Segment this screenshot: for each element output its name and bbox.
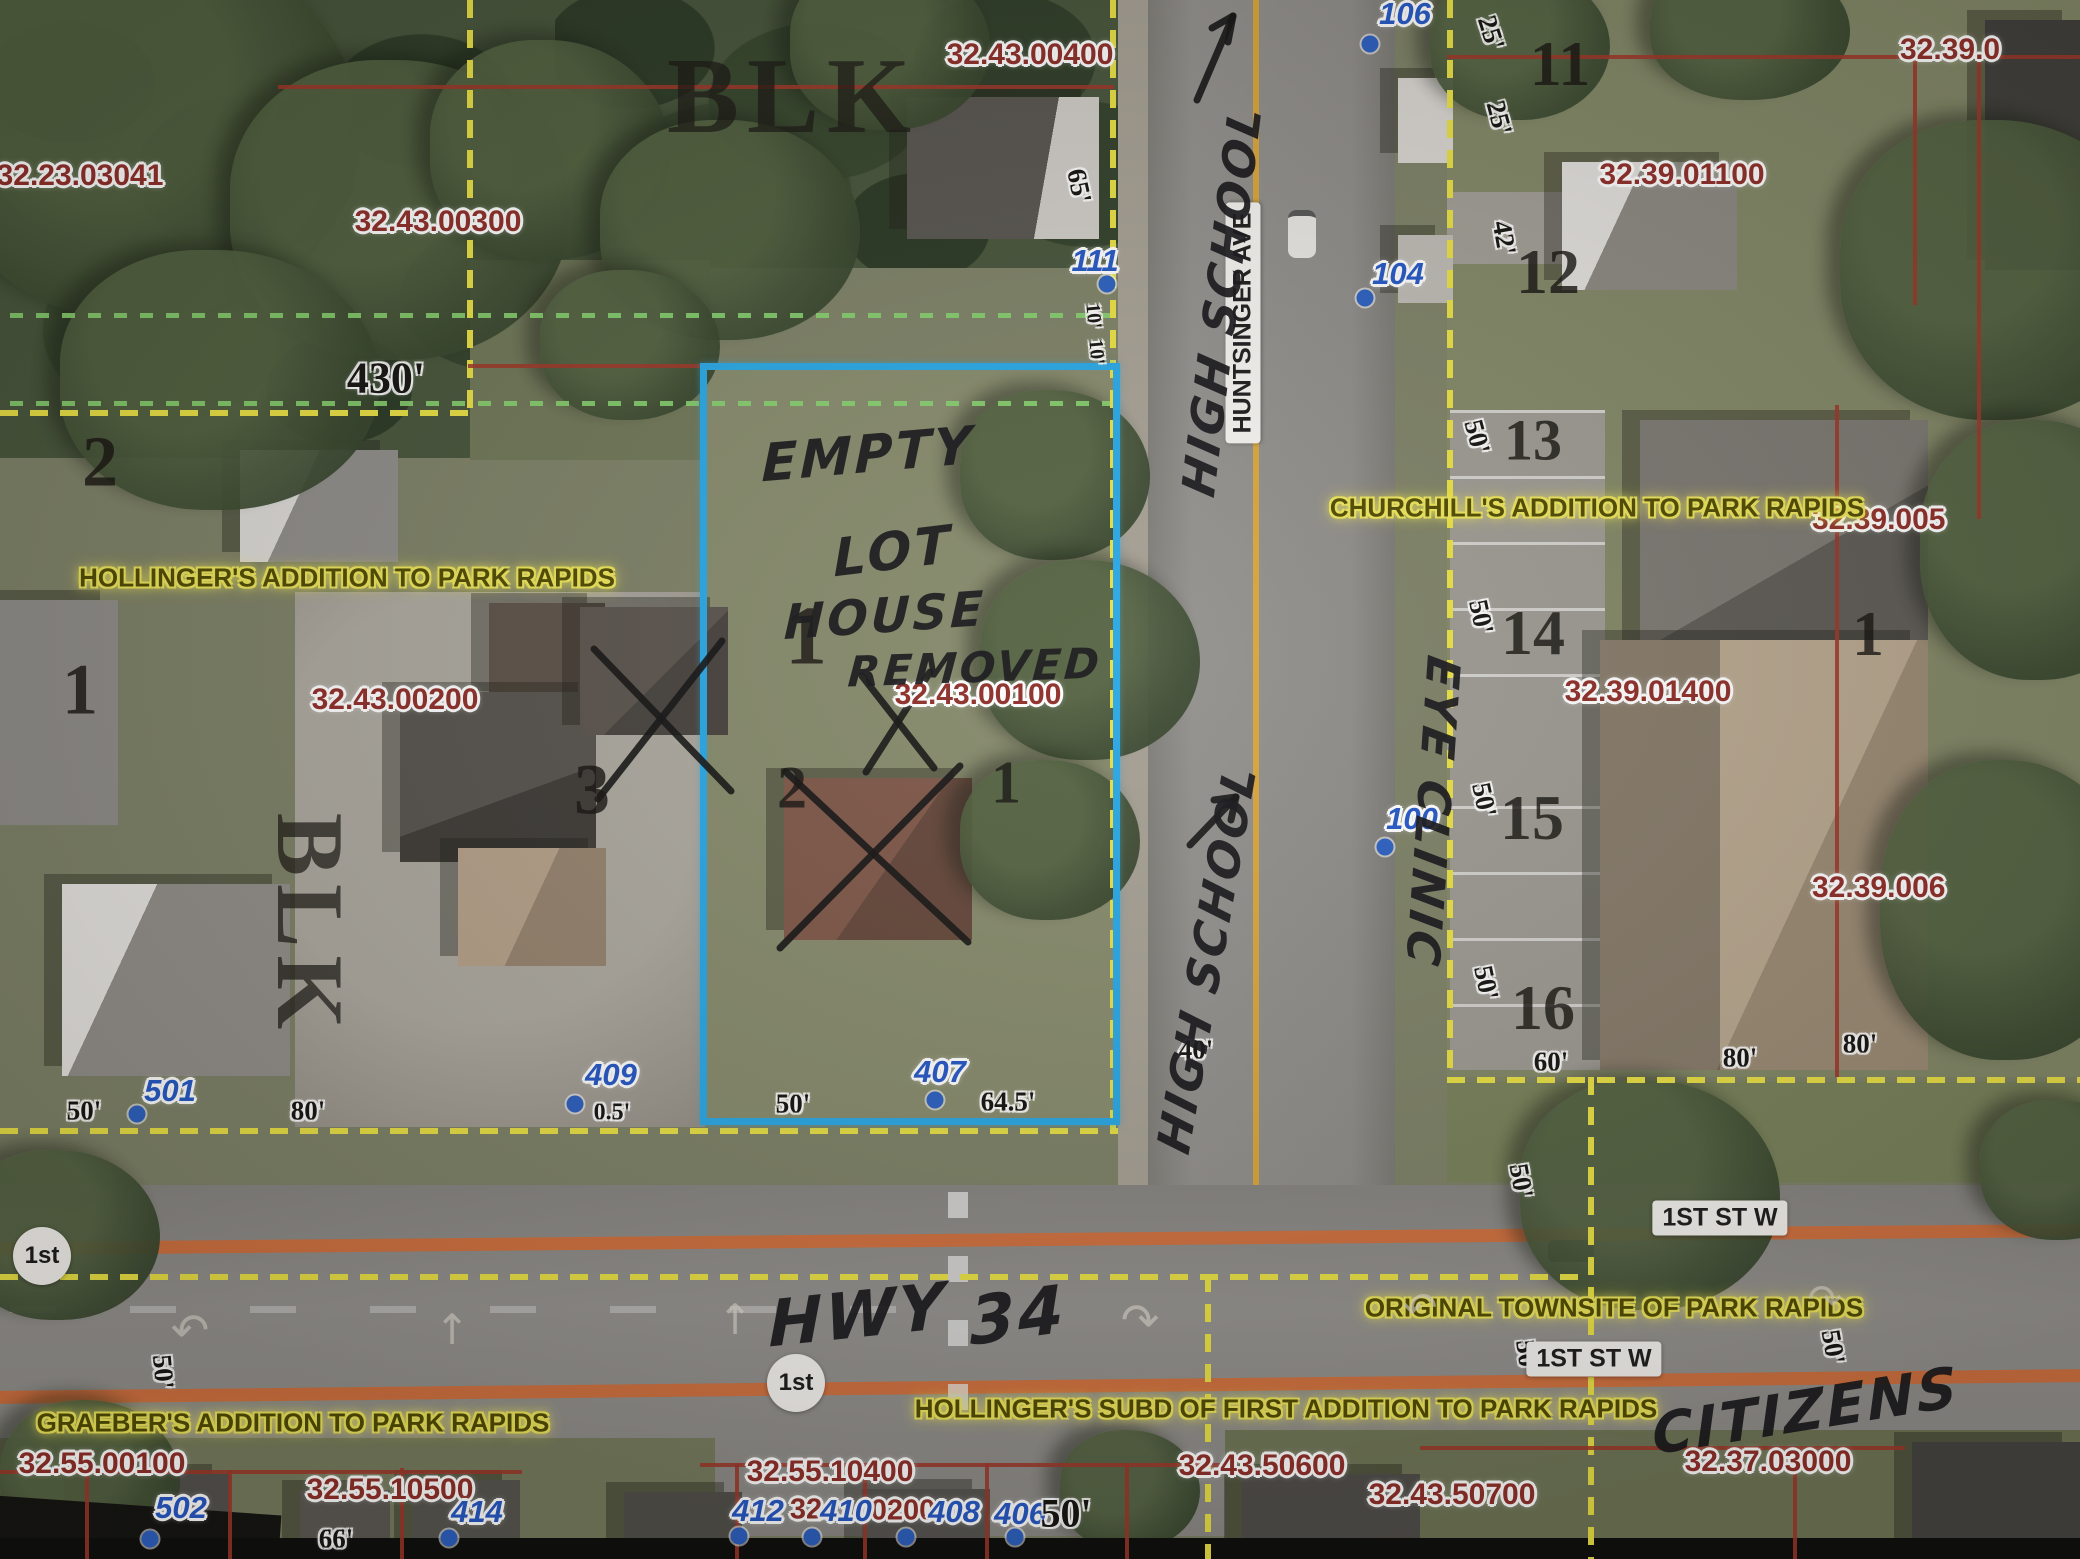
- parcel-number-32: 32: [790, 1494, 822, 1527]
- parcel-number-0200: 0200: [871, 1495, 936, 1528]
- address-point-dot: [731, 1528, 748, 1545]
- address-point-dot: [441, 1530, 458, 1547]
- parcel-number-32-55-10400: 32.55.10400: [747, 1455, 914, 1489]
- dimension-label-50: 50': [146, 1353, 180, 1390]
- lot-number-11: 11: [1530, 27, 1590, 101]
- highway-shield-1st: 1st: [13, 1227, 71, 1285]
- lot-number-1: 1: [1852, 597, 1884, 671]
- boundary-yellow-dashed: [0, 1274, 1588, 1280]
- boundary-yellow-dashed: [1447, 1077, 2080, 1083]
- boundary-yellow-dashed: [0, 410, 472, 416]
- address-point-dot: [804, 1529, 821, 1546]
- address-point-dot: [567, 1096, 584, 1113]
- dimension-label-80: 80': [291, 1096, 326, 1127]
- lot-number-2: 2: [777, 754, 807, 823]
- parcel-number-32-39-0: 32.39.0: [1900, 33, 2000, 67]
- parcel-number-32-43-00400: 32.43.00400: [947, 38, 1114, 72]
- parcel-line-red: [468, 364, 702, 368]
- address-point-dot: [1362, 36, 1379, 53]
- lot-number-12: 12: [1516, 235, 1580, 309]
- dimension-label-80: 80': [1843, 1029, 1878, 1060]
- road-arrow-marking-item: ↑: [717, 1299, 752, 1341]
- building-clinic: [1640, 420, 1928, 675]
- parcel-line-red: [85, 1470, 89, 1559]
- house-number-408: 408: [928, 1494, 980, 1530]
- parcel-line-red: [1913, 55, 1917, 305]
- road-arrow-marking-item: ↶: [171, 1307, 210, 1353]
- house-number-410: 410: [820, 1493, 872, 1529]
- dimension-label-64-5: 64.5': [981, 1087, 1036, 1118]
- handwritten-note-lot: LOT: [833, 519, 953, 586]
- dimension-label-50: 50': [67, 1096, 102, 1127]
- lot-number-2: 2: [82, 421, 118, 504]
- block-label-blk: BLK: [667, 35, 919, 159]
- lot-number-13: 13: [1504, 407, 1562, 474]
- dimension-label-80: 80': [1723, 1043, 1758, 1074]
- subdivision-label-hollinger-s-addition-to-park-rapids: HOLLINGER'S ADDITION TO PARK RAPIDS: [79, 563, 615, 594]
- house-number-501: 501: [144, 1073, 196, 1109]
- parcel-number-32-43-00200: 32.43.00200: [312, 683, 479, 717]
- road-arrow-marking-item: ↶: [1402, 1287, 1437, 1329]
- highway-shield-1st: 1st: [767, 1354, 825, 1412]
- parcel-number-32-55-10500: 32.55.10500: [307, 1473, 474, 1507]
- house-number-412: 412: [732, 1493, 784, 1529]
- address-point-dot: [1007, 1529, 1024, 1546]
- road-arrow-marking-item: ↑: [434, 1309, 469, 1351]
- subdivision-label-hollinger-s-subd-of-first-addition-to-park-rapids: HOLLINGER'S SUBD OF FIRST ADDITION TO PA…: [915, 1394, 1657, 1425]
- street-name-1st-st-w: 1ST ST W: [1526, 1342, 1661, 1377]
- dimension-label-0-5: 0.5': [594, 1100, 631, 1127]
- house-number-104: 104: [1372, 256, 1424, 292]
- dimension-label-66: 66': [319, 1524, 354, 1555]
- photo-border: [0, 1538, 2080, 1559]
- tree: [1880, 760, 2080, 1060]
- address-point-dot: [142, 1531, 159, 1548]
- dimension-label-50: 50': [1040, 1490, 1091, 1537]
- parcel-line-red: [1125, 1463, 1129, 1559]
- address-point-dot: [1357, 290, 1374, 307]
- parcel-line-red: [228, 1470, 232, 1559]
- house-number-106: 106: [1379, 0, 1431, 32]
- parcel-line-red: [1977, 57, 1981, 519]
- dimension-label-50: 50': [1815, 1327, 1852, 1366]
- building: [458, 848, 606, 966]
- address-point-dot: [129, 1106, 146, 1123]
- handwritten-note-removed: REMOVED: [847, 643, 1104, 694]
- handwritten-note-house: HOUSE: [783, 585, 987, 647]
- address-point-dot: [1377, 839, 1394, 856]
- tree: [540, 270, 720, 420]
- dimension-label-42: 42': [1486, 218, 1523, 257]
- lot-number-3: 3: [574, 749, 610, 832]
- parcel-number-32-55-00100: 32.55.00100: [19, 1447, 186, 1481]
- car: [1288, 210, 1316, 258]
- address-point-dot: [1099, 276, 1116, 293]
- building: [400, 692, 596, 862]
- handwritten-note-hwy: HWY: [769, 1274, 948, 1357]
- lot-number-14: 14: [1501, 596, 1565, 670]
- house-number-111: 111: [1071, 243, 1118, 279]
- street-name-1st-st-w: 1ST ST W: [1652, 1201, 1787, 1236]
- aerial-parcel-map: 32.23.0304132.43.0030032.43.0040032.43.0…: [0, 0, 2080, 1559]
- subdivision-label-original-townsite-of-park-rapids: ORIGINAL TOWNSITE OF PARK RAPIDS: [1365, 1293, 1863, 1324]
- lot-number-16: 16: [1511, 971, 1575, 1045]
- dimension-label-430: 430': [347, 353, 425, 404]
- dimension-label-50: 50': [776, 1089, 811, 1120]
- house-number-407: 407: [914, 1054, 966, 1090]
- house-number-414: 414: [451, 1494, 503, 1530]
- lot-number-15: 15: [1500, 781, 1564, 855]
- lot-number-1: 1: [991, 749, 1021, 818]
- dimension-label-10: 10': [1080, 302, 1105, 329]
- house-number-409: 409: [585, 1057, 637, 1093]
- house-number-502: 502: [155, 1490, 207, 1526]
- lot-number-1: 1: [62, 649, 98, 732]
- road-arrow-marking-item: ↷: [1807, 1279, 1842, 1321]
- parcel-number-32-43-00300: 32.43.00300: [355, 205, 522, 239]
- parcel-number-32-43-50600: 32.43.50600: [1179, 1449, 1346, 1483]
- house-number-406: 406: [994, 1496, 1046, 1532]
- parcel-number-32-39-01400: 32.39.01400: [1565, 675, 1732, 709]
- parcel-line-red: [985, 1463, 989, 1559]
- road-arrow-marking-item: ↷: [1121, 1297, 1160, 1343]
- boundary-yellow-dashed: [0, 1128, 1118, 1134]
- dimension-label-10: 10': [1083, 338, 1108, 365]
- parcel-number-32-43-50700: 32.43.50700: [1369, 1478, 1536, 1512]
- parcel-number-32-23-03041: 32.23.03041: [0, 159, 163, 193]
- block-label-blk: BLK: [255, 813, 365, 1038]
- address-point-dot: [927, 1092, 944, 1109]
- dimension-label-60: 60': [1534, 1047, 1569, 1078]
- parcel-number-32-39-01100: 32.39.01100: [1599, 158, 1764, 192]
- parcel-number-32-39-006: 32.39.006: [1812, 871, 1945, 905]
- handwritten-note-34: 34: [968, 1276, 1067, 1356]
- building: [0, 600, 118, 825]
- address-point-dot: [898, 1529, 915, 1546]
- dimension-label-50: 50': [1503, 1161, 1540, 1200]
- setback-green-dashed: [10, 313, 1110, 318]
- subdivision-label-churchill-s-addition-to-park-rapids: CHURCHILL'S ADDITION TO PARK RAPIDS: [1330, 493, 1864, 524]
- subdivision-label-graeber-s-addition-to-park-rapids: GRAEBER'S ADDITION TO PARK RAPIDS: [37, 1408, 550, 1439]
